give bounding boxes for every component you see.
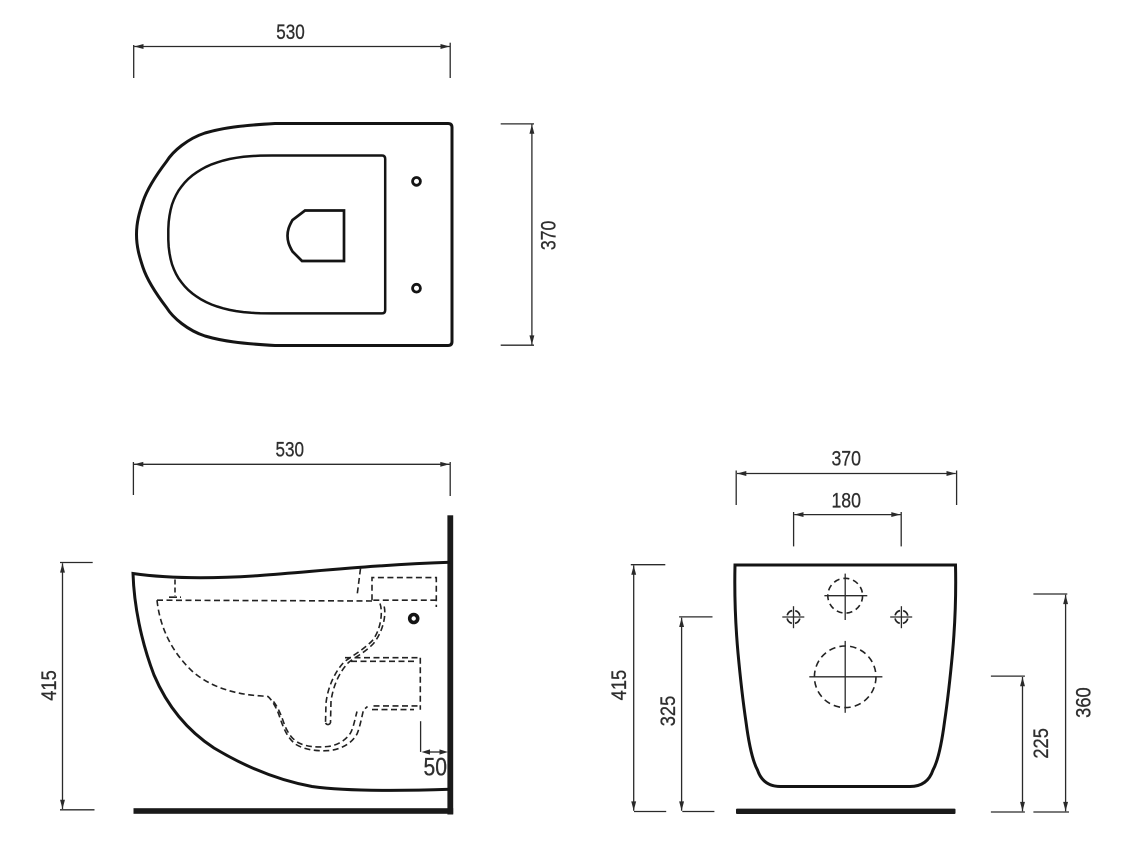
svg-text:225: 225 (1029, 728, 1053, 759)
svg-text:370: 370 (536, 221, 560, 251)
svg-text:180: 180 (831, 489, 861, 513)
svg-text:415: 415 (607, 670, 631, 701)
svg-text:530: 530 (276, 20, 305, 44)
svg-text:370: 370 (831, 447, 861, 471)
svg-text:415: 415 (37, 670, 61, 701)
svg-text:50: 50 (424, 754, 448, 782)
svg-text:530: 530 (276, 438, 305, 462)
svg-text:325: 325 (656, 696, 680, 727)
svg-text:360: 360 (1071, 687, 1095, 718)
